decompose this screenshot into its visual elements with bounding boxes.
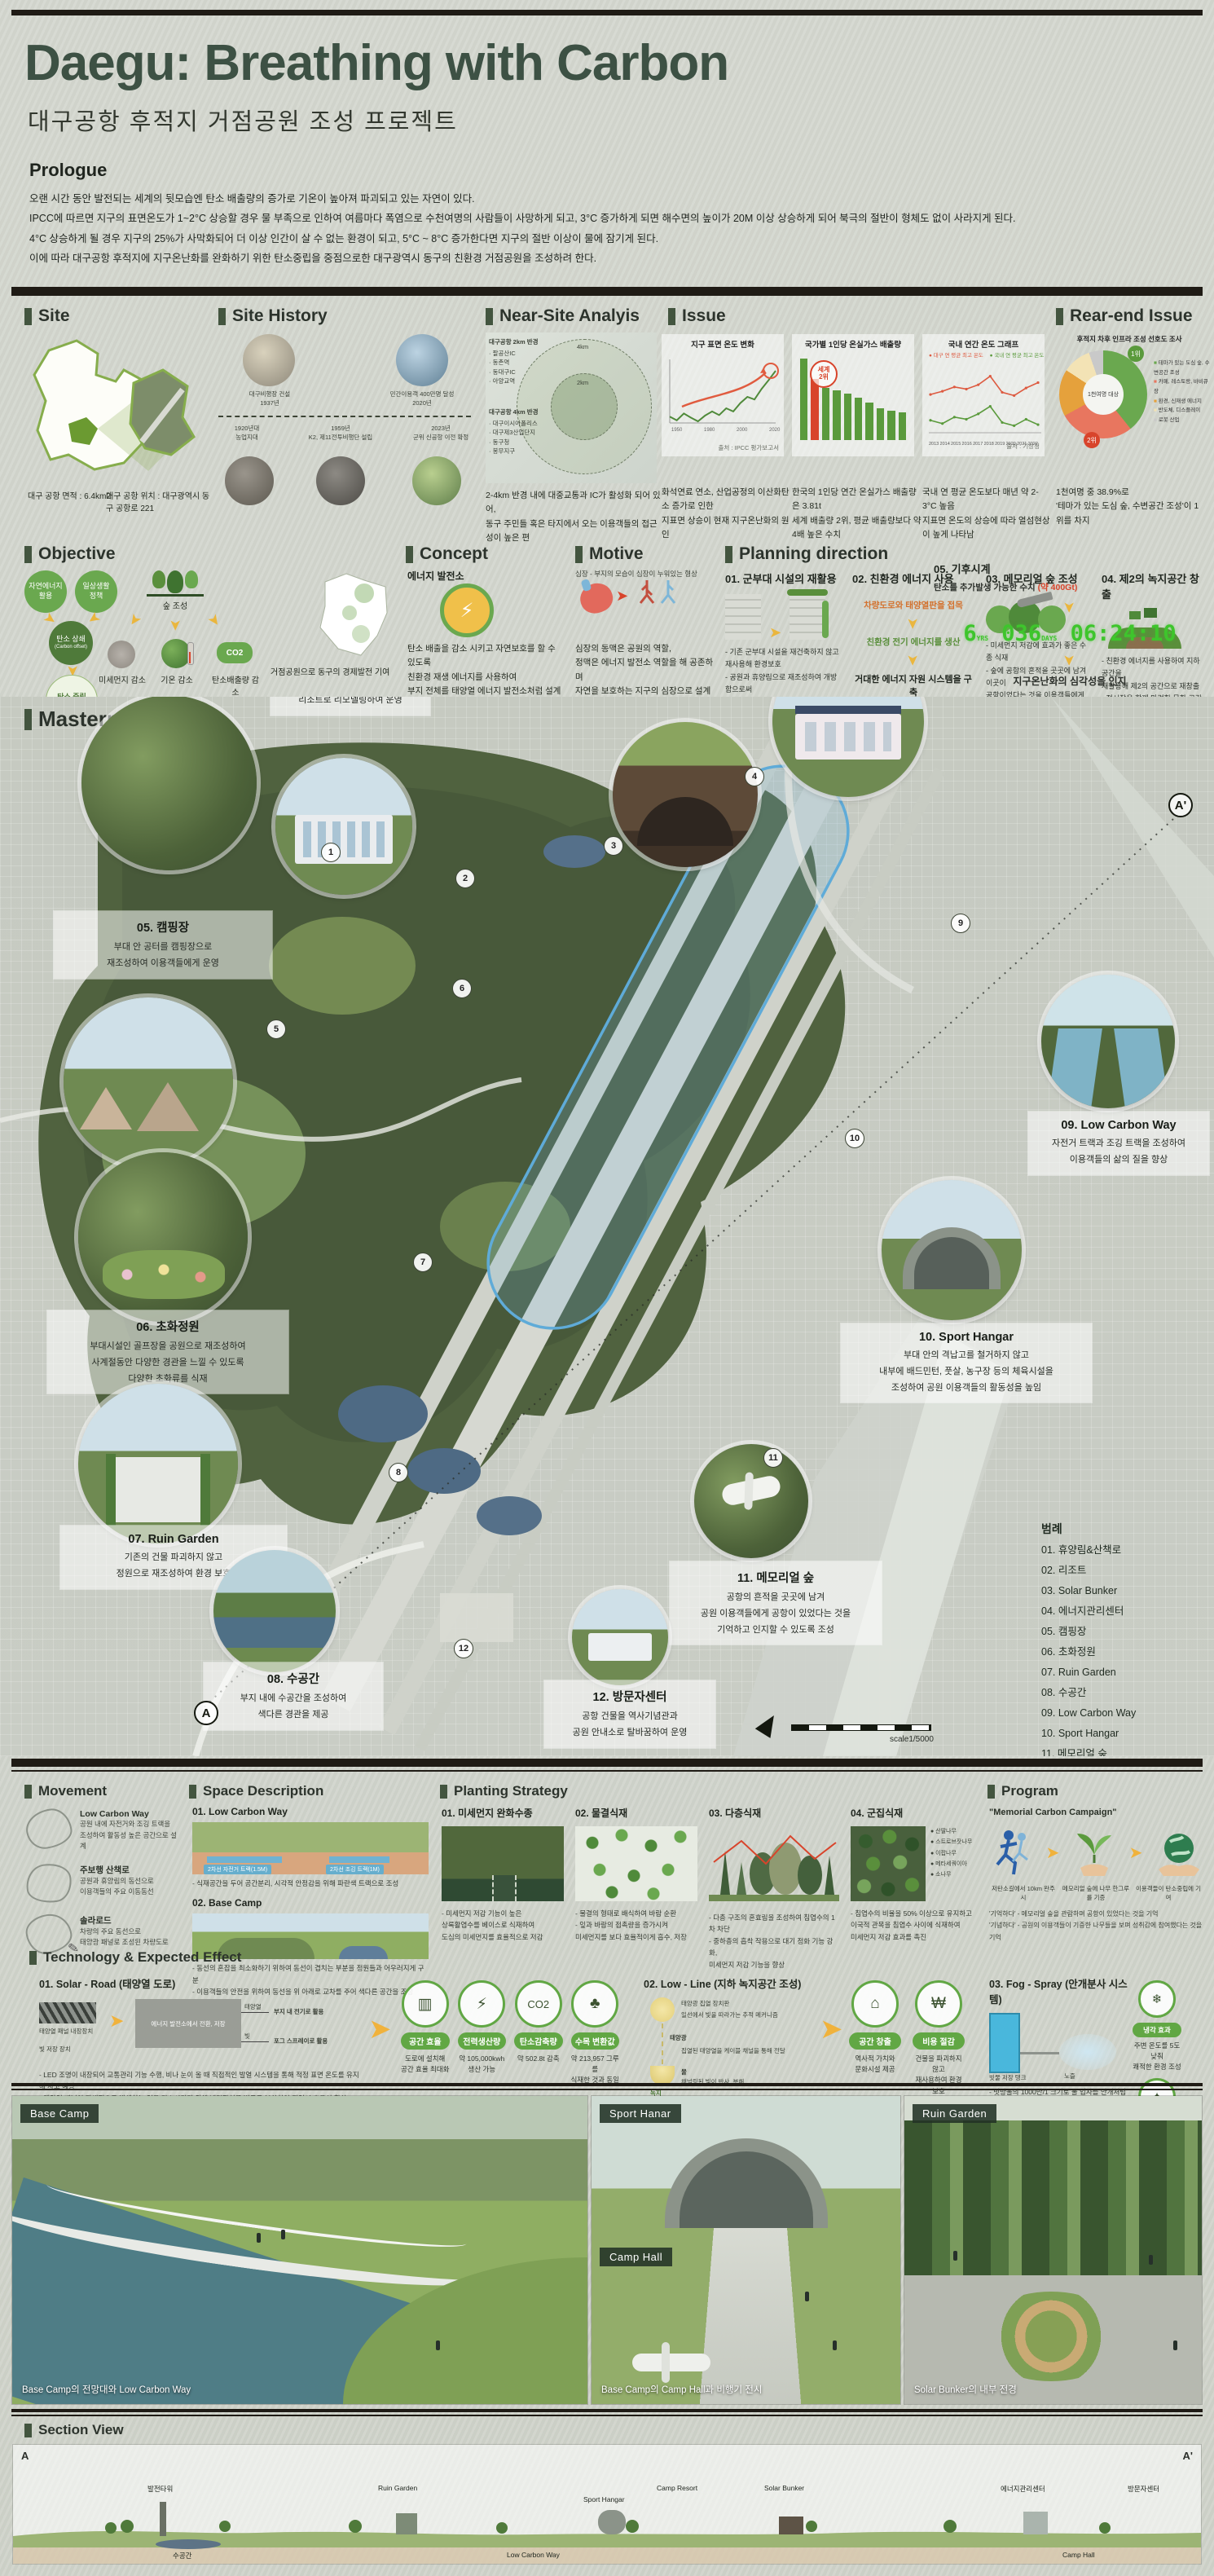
hangar-arch: [665, 2138, 828, 2228]
memorial-airplane: [720, 1474, 782, 1507]
legend-item: 05. 캠핑장: [1041, 1622, 1136, 1642]
section-view-heading: Section View: [24, 2422, 124, 2438]
program-step2: 메모리얼 숲에 나무 한그루를 기증: [1062, 1884, 1130, 1902]
earth-thermometer-icon: [161, 639, 191, 668]
history-photo-2020: [396, 334, 448, 386]
timeline-axis: [218, 416, 471, 417]
badge-carbon: CO2탄소감축량약 502.8t 감축: [514, 1980, 563, 2086]
issue-heading: Issue: [668, 306, 726, 326]
callout-12: 12. 방문자센터 공항 건물을 역사기념관과 공원 안내소로 탈바꿈하여 운영: [544, 1680, 715, 1748]
donut-legend-item: ■ 카페, 레스토랑, 바비큐장: [1154, 377, 1211, 396]
blue-track-left: [1047, 1028, 1102, 1108]
domestic-temp-line-chart: [922, 359, 1045, 438]
bar: [800, 359, 807, 440]
program-step1: 저탄소길에서 10km 완주 시: [989, 1884, 1058, 1902]
movement-route-1: Low Carbon Way공원 내에 자전거와 조깅 트랙을 조성하여 활동성…: [26, 1809, 179, 1852]
svg-text:2000: 2000: [737, 428, 748, 433]
tech2-l3: 집열된 태양열을 케이블 채널을 통해 전달: [681, 2046, 812, 2055]
movement-heading: Movement: [24, 1783, 107, 1799]
history-1959-label: K2, 제11전투비행단 설립: [309, 434, 372, 441]
visitor-center-building: [588, 1633, 652, 1661]
site-heading: Site: [24, 306, 70, 326]
history-1937-year: 1937년: [260, 399, 279, 407]
site-area-label: 대구 공항 면적 : 6.4km2: [28, 489, 111, 501]
section-label-water: 수공간: [173, 2551, 191, 2561]
legend-item: 06. 초화정원: [1041, 1642, 1136, 1662]
map-marker-8: 8: [389, 1463, 408, 1482]
map-marker-12: 12: [454, 1639, 473, 1658]
section-label-energy-center: 에너지관리센터: [1001, 2484, 1045, 2494]
map-marker-7: 7: [413, 1253, 433, 1272]
chart-domestic-temp: 국내 연간 온도 그래프 ● 대구 연 평균 최고 온도 ● 국내 연 평균 최…: [922, 334, 1045, 456]
history-2020-year: 2020년: [412, 399, 432, 407]
callout-02: 02. 리조트 생활관으로 사용하던 공간을 리조트로 리모델링하여 운영: [271, 697, 430, 716]
legend-item: 09. Low Carbon Way: [1041, 1703, 1136, 1724]
climate-clock: 6YRS 036DAYS 06:24:10: [934, 621, 1206, 646]
ruin-court: [116, 1457, 200, 1522]
history-photo-1920s: [225, 456, 274, 505]
donut-legend-item: ■ 반도체, 디스플레이: [1154, 406, 1211, 416]
arrow-right-icon: ➤: [820, 2013, 843, 2045]
tech2-w1: 태양광: [670, 2033, 687, 2042]
callout-06: 06. 초화정원 부대시설인 골프장을 공원으로 재조성하여 사계절동안 다양한…: [47, 1310, 288, 1394]
technology-heading: Technology & Expected Effect: [29, 1949, 241, 1966]
planting-item-3: 03. 다층식재 - 다층 구조의 혼효림을 조성하여 침엽수의 1차 차단 -…: [709, 1806, 839, 1971]
tech1-diagram: 태양열 패널 내장장치 빛 저장 장치 ➤ 에너지 발전소에서 전환, 저장 태…: [39, 1997, 365, 2061]
vessels-icon: [634, 577, 683, 619]
near-group1-items: · 팔공산IC · 동촌역 · 동대구IC · 아양교역: [489, 349, 516, 385]
near-group1-title: 대구공항 2km 반경: [489, 337, 539, 346]
section-label-low-carbon-way: Low Carbon Way: [507, 2551, 560, 2559]
motive-body: 심장의 동맥은 공원의 역할, 정맥은 에너지 발전소 역할을 해 공존하며 자…: [575, 642, 714, 698]
history-1937-label: 대구비행장 건설: [249, 390, 290, 398]
building-reuse-icon: ➤: [725, 594, 839, 640]
bar: [833, 390, 840, 440]
objective-node-offset: 탄소 상쇄(Carbon offset): [49, 621, 93, 665]
thermometer-icon: ❄: [1138, 1980, 1176, 2018]
bar: [887, 411, 895, 440]
prologue-body: 오랜 시간 동안 발전되는 세계의 뒷모습엔 탄소 배출량의 증가로 기온이 높…: [29, 189, 1186, 269]
planting-item-2: 02. 물결식재 - 물결의 형태로 배식하여 바람 순환 - 잎과 바람의 접…: [575, 1806, 697, 1943]
program-sub: "Memorial Carbon Campaign": [989, 1808, 1117, 1817]
tech1-out1b: 부지 내 전기로 활용: [274, 2007, 323, 2016]
tech1-title: 01. Solar - Road (태양열 도로): [39, 1975, 365, 1991]
badge-trees: ♣수목 변환값약 213,957 그루를 식재한 것과 동일: [571, 1980, 620, 2086]
world-rank-badge: 세계 2위: [810, 360, 838, 388]
space-item-1: 01. Low Carbon Way 2차선 자전거 트랙(1.5M) 2차선 …: [192, 1806, 429, 1998]
heading-bullet: [24, 308, 32, 325]
section-label-sport-hangar: Sport Hangar: [583, 2495, 625, 2503]
donut-legend: ■ 테마가 있는 도심 숲, 수변공간 조성■ 카페, 레스토랑, 바비큐장■ …: [1154, 359, 1211, 425]
planning5-top: 탄소를 추가발생 가능한 수치 (약 400Gt): [934, 581, 1206, 593]
history-1920-label: 농업지대: [235, 434, 258, 441]
legend-item: 03. Solar Bunker: [1041, 1581, 1136, 1601]
history-photo-1937: [243, 334, 295, 386]
arrow-icon: ➤: [616, 588, 628, 603]
hangar-arch: [903, 1227, 1001, 1289]
callout-10: 10. Sport Hangar 부대 안의 격납고를 철거하지 않고 내부에 …: [841, 1323, 1092, 1402]
co2-cloud-icon: CO2: [217, 642, 253, 663]
movement-route-3: ✎ 솔라로드차량의 주요 동선으로 태양광 패널로 조성된 차량도로: [26, 1914, 179, 1953]
tech2-l2: 일선에서 빛을 따라가는 추적 메커니즘: [681, 2010, 812, 2019]
chart2-title: 국가별 1인당 온실가스 배출량: [792, 334, 914, 350]
tree-icon: ♣: [571, 1980, 618, 2028]
donut-legend-item: ■ 환경, 신재생 에너지: [1154, 397, 1211, 407]
divider-rule-3: [11, 2083, 1203, 2086]
render3-tag: Ruin Garden: [913, 2104, 996, 2123]
svg-text:1980: 1980: [704, 428, 715, 433]
program-quote-2: '기념하다' - 공원의 이용객들이 기증한 나무들을 보며 성취감에 참여했다…: [989, 1920, 1206, 1944]
track-tag-2: 2차선 조깅 트랙(1M): [326, 1865, 384, 1874]
bunker-arch: [637, 797, 733, 846]
tech3-diagram: 빗물 저장 탱크 노즐: [989, 2013, 1128, 2086]
legend-item: 02. 리조트: [1041, 1561, 1136, 1581]
planting-item-4: 04. 군집식재 ● 산딸나무 ● 스트로브잣나무 ● 이팝나무 ● 메타세쿼이…: [851, 1806, 973, 1943]
legend-item: 07. Ruin Garden: [1041, 1662, 1136, 1683]
mist-icon: [1059, 2034, 1116, 2070]
program-quote-1: '기억하다' - 메모리얼 숲을 관람하며 공항이 있었다는 것을 기억: [989, 1909, 1206, 1920]
legend-item: 11. 메모리얼 숲: [1041, 1744, 1136, 1756]
daegu-district-map: [314, 570, 391, 660]
divider-rule-4: [11, 2409, 1203, 2412]
arrow-right-icon: ➤: [1129, 1843, 1143, 1863]
road-icon: ▥: [402, 1980, 449, 2028]
tech3-tank-label: 빗물 저장 탱크: [989, 2073, 1038, 2082]
divider-rule-1: [11, 287, 1203, 296]
render3-caption: Solar Bunker의 내부 전경: [914, 2383, 1017, 2396]
arrow-right-icon: ➤: [368, 2013, 392, 2045]
tunnel-icon: ⌂: [851, 1980, 899, 2028]
blue-track-right: [1114, 1028, 1169, 1108]
chart-ghg-bars: 국가별 1인당 온실가스 배출량 세계 2위: [792, 334, 914, 456]
near-group2-title: 대구공항 4km 반경: [489, 407, 539, 416]
chart3-title: 국내 연간 온도 그래프: [922, 334, 1045, 350]
green-wall-garden: [904, 2120, 1202, 2275]
planting2-image: [575, 1826, 697, 1901]
section-label-camp-hall: Camp Hall: [1062, 2551, 1095, 2559]
near-group2-items: · 대구이시아폴리스 · 대구제3산업단지 · 동구청 · 봉무지구: [489, 419, 538, 456]
badge-cost: ₩비용 절감건물을 파괴하지 않고 재사용하여 환경보호: [913, 1980, 965, 2097]
tech3-nozzle-label: 노즐: [1064, 2072, 1075, 2081]
tech3-title: 03. Fog - Spray (안개분사 시스템): [989, 1975, 1128, 2006]
tech1-out1a: 태양열: [244, 2002, 262, 2011]
section-profile: [13, 2445, 1201, 2564]
space-desc-heading: Space Description: [189, 1783, 323, 1799]
near-site-heading: Near-Site Analyis: [486, 306, 640, 326]
bar: [855, 398, 862, 440]
chart3-legend-daegu: ● 대구 연 평균 최고 온도: [929, 353, 983, 359]
earth-hands-icon: [1155, 1827, 1203, 1878]
bar: [822, 388, 829, 440]
tech2-diagram: 태양광 집열 장치판 일선에서 빛을 따라가는 추적 메커니즘 태양광 집열된 …: [644, 1997, 823, 2095]
section-marker-a: A: [194, 1701, 218, 1725]
callout-09: 09. Low Carbon Way 자전거 트랙과 조깅 트랙을 조성하여 이…: [1028, 1112, 1209, 1175]
section-label-camp-resort: Camp Resort: [657, 2484, 697, 2492]
planning-heading: Planning direction: [725, 544, 888, 564]
legend-item: 04. 에너지관리센터: [1041, 1601, 1136, 1622]
planning5-bottom: 지구온난화의 심각성을 인지: [934, 674, 1206, 688]
dust-icon: [108, 641, 135, 668]
objective-map-caption: 거점공원으로 동구의 경제발전 기여: [271, 665, 393, 677]
badge-power: ⚡전력생산량약 105,000kwh 생산 가능: [458, 1980, 507, 2086]
flower-bed: [103, 1250, 225, 1299]
runner-icon: [989, 1827, 1033, 1878]
map-marker-11: 11: [763, 1448, 783, 1468]
render-ruin-garden: Ruin Garden Solar Bunker의 내부 전경: [904, 2096, 1202, 2404]
render2-tag1: Sport Hanar: [600, 2104, 681, 2123]
poster-title: Daegu: Breathing with Carbon: [24, 34, 728, 92]
program-step3: 이용객들이 탄소중립에 기여: [1134, 1884, 1203, 1902]
tech1-badges: ▥공간 효율도로에 설치해 공간 효율 최대화 ⚡전력생산량약 105,000k…: [401, 1980, 619, 2086]
map-legend: 범례 01. 휴양림&산책로 02. 리조트 03. Solar Bunker …: [1041, 1517, 1136, 1756]
tech2-title: 02. Low - Line (지하 녹지공간 조성): [644, 1975, 823, 1991]
concept-sub: 에너지 발전소: [407, 569, 464, 583]
masterplan-map: Masterplan 01. 휴양림&산책로 기존에 있는 산지에 산책로를 만…: [0, 697, 1214, 1756]
map-marker-10: 10: [845, 1129, 864, 1148]
benefit1-label: 미세먼지 감소: [96, 673, 148, 685]
arrow-down-icon: ➤: [1062, 654, 1077, 666]
airplane: [632, 2354, 710, 2371]
scale-label: scale1/5000: [890, 1735, 934, 1744]
tech2-badges: ⌂공간 창출역사적 가치와 문화시설 제공 ₩비용 절감건물을 파괴하지 않고 …: [849, 1980, 971, 2097]
program-steps-icons: ➤ ➤: [989, 1827, 1203, 1878]
badge-space: ▥공간 효율도로에 설치해 공간 효율 최대화: [401, 1980, 450, 2086]
sun-energy-icon: ⚡: [440, 583, 494, 637]
donut-legend-item: ■ 테마가 있는 도심 숲, 수변공간 조성: [1154, 359, 1211, 377]
callout-11: 11. 메모리얼 숲 공항의 흔적을 곳곳에 남겨 공원 이용객들에게 공항이 …: [670, 1561, 882, 1645]
bar: [811, 379, 818, 440]
legend-title: 범례: [1041, 1517, 1136, 1540]
solar-roof: [795, 706, 901, 714]
poster-root: { "poster": { "header": { "title": "Daeg…: [0, 0, 1214, 2576]
donut-legend-item: ■ 로봇 산업: [1154, 416, 1211, 425]
objective-node-natural-energy: 자연에너지 활용: [24, 570, 67, 613]
legend-item: 10. Sport Hangar: [1041, 1724, 1136, 1744]
arrow-down-icon: ➤: [1062, 601, 1077, 613]
map-marker-5: 5: [266, 1019, 286, 1039]
tent-icon: [137, 1082, 199, 1131]
history-photo-2023: [412, 456, 461, 505]
planting-heading: Planting Strategy: [440, 1783, 568, 1799]
history-1920-year: 1920년대: [235, 425, 260, 432]
chart2-caption: 한국의 1인당 연간 온실가스 배출량은 3.81t 세계 배출량 2위, 평균…: [792, 486, 922, 542]
program-heading: Program: [987, 1783, 1058, 1799]
coin-icon: ₩: [915, 1980, 962, 2028]
rank1-badge: 1위: [1128, 346, 1144, 362]
callout-01-photo: [81, 697, 257, 870]
callout-11-photo: [694, 1444, 808, 1558]
heliostat-icon: [650, 1997, 675, 2022]
map-marker-9: 9: [951, 914, 970, 933]
plug-icon: ⚡: [458, 1980, 505, 2028]
movement-routes: Low Carbon Way공원 내에 자전거와 조깅 트랙을 조성하여 활동성…: [26, 1809, 179, 1953]
planting3-image: [709, 1826, 839, 1901]
callout-09-photo: [1041, 975, 1175, 1108]
chart-global-temp: 지구 표면 온도 변화 1950198020002020 출처 : IPCC 평…: [662, 334, 784, 456]
resort-building: [295, 815, 393, 864]
tech-group-2: 02. Low - Line (지하 녹지공간 조성) 태양광 집열 장치판 일…: [644, 1975, 823, 2095]
arrow-down-icon: ➤: [906, 654, 921, 666]
arrow-icon: ➤: [205, 611, 224, 630]
co2-icon: CO2: [515, 1980, 562, 2028]
preference-donut-chart: 1천여명 대상 1위 2위: [1059, 350, 1147, 438]
legend-item: 08. 수공간: [1041, 1683, 1136, 1703]
low-carbon-way-section: 2차선 자전거 트랙(1.5M) 2차선 조깅 트랙(1M): [192, 1822, 429, 1874]
tech1-out2b: 포그 스프레이로 활용: [274, 2037, 328, 2045]
chart1-source: 출처 : IPCC 평가보고서: [662, 443, 784, 452]
scale-bar: [792, 1725, 930, 1730]
section-label-solar-bunker: Solar Bunker: [764, 2484, 804, 2492]
tent-icon: [80, 1087, 132, 1129]
site-history-timeline: 대구비행장 건설1937년 민간이용객 400만명 달성2020년 1920년대…: [218, 332, 471, 520]
bar: [865, 403, 873, 440]
tech2-w2: 물: [681, 2067, 687, 2076]
map-marker-1: 1: [321, 843, 341, 862]
history-2023-label: 군위 신공항 이전 확정: [413, 434, 468, 441]
section-label-visitor-center: 방문자센터: [1128, 2484, 1159, 2494]
tech2-l1: 태양광 집열 장치판: [681, 1999, 803, 2008]
tech1-out2a: 빛: [244, 2032, 250, 2041]
objective-node-daily-policy: 일상생활 정책: [75, 570, 117, 613]
render1-tag: Base Camp: [20, 2104, 99, 2123]
site-location-label: 대구 공항 위치 : 대구광역시 동구 공항로 221: [106, 489, 212, 513]
motive-heading: Motive: [575, 544, 644, 564]
svg-text:2020: 2020: [769, 428, 781, 433]
planting1-image: [442, 1826, 564, 1901]
planning5-title: 05. 기후시계: [934, 561, 1206, 576]
section-marker-a-prime: A': [1168, 793, 1193, 817]
solar-panel-icon: [39, 2002, 96, 2023]
callout-06-photo: [78, 1152, 248, 1322]
route-sketch-icon: [24, 1806, 74, 1851]
arrow-icon: ➤: [169, 619, 183, 631]
history-photo-1959: [316, 456, 365, 505]
energy-center-building: [795, 714, 901, 760]
chart3-legend-national: ● 국내 연 평균 최고 온도: [990, 353, 1045, 359]
circular-flower-bed: [978, 2292, 1124, 2381]
badge-cooling: ❄냉각 효과주변 온도를 5도 낮춰 쾌적한 환경 조성: [1133, 1980, 1181, 2073]
objective-diagram: 자연에너지 활용 일상생활 정책 ➤ ➤ 탄소 상쇄(Carbon offset…: [24, 570, 310, 693]
forest-icon: 숲 조성: [147, 570, 204, 611]
callout-07-photo: [78, 1384, 238, 1543]
track-tag-1: 2차선 자전거 트랙(1.5M): [204, 1865, 271, 1874]
tech1-panel-label: 태양열 패널 내장장치: [39, 2027, 104, 2036]
callout-12-photo: [572, 1589, 668, 1685]
badge-space-create: ⌂공간 창출역사적 가치와 문화시설 제공: [849, 1980, 901, 2097]
movement-route-2: 주보행 산책로공원과 휴양림의 동선으로 이용객들의 주요 이동동선: [26, 1864, 179, 1903]
forest-label: 숲 조성: [147, 599, 204, 611]
tech1-store-label: 빛 저장 장치: [39, 2045, 104, 2054]
section-label-tower: 발전타워: [147, 2484, 173, 2494]
planning-item-1: 01. 군부대 시설의 재활용 ➤ - 기존 군부대 시설을 재건축하지 않고 …: [725, 570, 839, 708]
section-view-box: A A' 발전타워 Ruin Garden Sport Hangar Camp …: [13, 2445, 1201, 2564]
chart3-year-ticks: 2013201420152016201720182019202020212022: [929, 442, 1038, 447]
planning1-title: 01. 군부대 시설의 재활용: [725, 570, 839, 586]
map-marker-4: 4: [745, 767, 764, 786]
objective-heading: Objective: [24, 544, 116, 564]
ring-4km-label: 4km: [577, 342, 588, 351]
arrow-right-icon: ➤: [1046, 1843, 1060, 1863]
divider-rule-2b: [11, 1770, 1203, 1772]
render2-tag2: Camp Hall: [600, 2248, 672, 2266]
chart1-caption: 화석연료 연소, 산업공정의 이산화탄소 증가로 인한 지표면 상승이 현재 지…: [662, 486, 792, 542]
callout-10-photo: [882, 1180, 1022, 1320]
chart1-title: 지구 표면 온도 변화: [662, 334, 784, 350]
concept-body: 탄소 배출을 감소 시키고 자연보호를 할 수 있도록 친환경 재생 에너지를 …: [407, 642, 562, 698]
top-rule: [11, 10, 1203, 15]
render1-caption: Base Camp의 전망대와 Low Carbon Way: [22, 2383, 191, 2396]
near-site-map: 4km 2km 대구공항 2km 반경 · 팔공산IC · 동촌역 · 동대구I…: [486, 332, 657, 483]
arrow-right-icon: ➤: [769, 625, 781, 640]
tech1-plant-box: 에너지 발전소에서 전환, 저장: [135, 1999, 241, 2048]
history-2023-year: 2023년: [431, 425, 451, 432]
callout-08: 08. 수공간 부지 내에 수공간을 조성하여 색다른 경관을 제공: [204, 1662, 383, 1730]
site-map-graphic: [26, 332, 201, 483]
bar: [844, 394, 851, 440]
planting-item-1: 01. 미세먼지 완화수종 - 미세먼지 저감 기능이 높은 상록활엽수를 베이…: [442, 1806, 564, 1943]
benefit3-label: 탄소배출량 감소: [209, 673, 262, 698]
divider-rule-2: [11, 1759, 1203, 1767]
callout-03-photo: [613, 722, 758, 867]
near-site-caption: 2-4km 반경 내에 대중교통과 IC가 활성화 되어 있어, 동구 주민들 …: [486, 489, 665, 545]
map-marker-6: 6: [452, 979, 472, 998]
route-sketch-icon: [24, 1860, 74, 1905]
chart3-caption: 국내 연 평균 온도보다 매년 약 2-3°C 높음 지표면 온도의 상승에 따…: [922, 486, 1053, 542]
divider-rule-4b: [11, 2415, 1203, 2416]
legend-item: 01. 휴양림&산책로: [1041, 1540, 1136, 1561]
callout-05: 05. 캠핑장 부대 안 공터를 캠핑장으로 재조성하여 이용객들에게 운영: [54, 911, 272, 979]
callout-08-photo: [213, 1550, 336, 1672]
bar: [899, 412, 906, 440]
benefit2-label: 기온 감소: [156, 673, 197, 685]
planning-item-5: 05. 기후시계탄소를 추가발생 가능한 수치 (약 400Gt)➤6YRS 0…: [934, 561, 1206, 688]
rank2-badge: 2위: [1084, 432, 1100, 448]
species-legend: ● 산딸나무 ● 스트로브잣나무 ● 이팝나무 ● 메타세쿼이아 ● 소나무: [930, 1826, 972, 1901]
svg-text:1950: 1950: [671, 428, 683, 433]
poster-subtitle: 대구공항 후적지 거점공원 조성 프로젝트: [28, 103, 458, 137]
concept-heading: Concept: [406, 544, 488, 564]
divider-rule-3b: [11, 2089, 1203, 2090]
render-base-camp: Base Camp Base Camp의 전망대와 Low Carbon Way: [12, 2096, 587, 2404]
donut-caption: 1천여명 중 38.9%로 '테마가 있는 도심 숲, 수변공간 조성'이 1위…: [1056, 486, 1203, 528]
path: [695, 2228, 806, 2404]
callout-02-photo: [275, 758, 412, 895]
map-marker-2: 2: [455, 869, 475, 888]
global-temp-line-chart: 1950198020002020: [662, 350, 784, 439]
donut-center-label: 1천여명 대상: [1083, 374, 1124, 415]
arrow-right-icon: ➤: [109, 2010, 124, 2032]
history-1959-year: 1959년: [331, 425, 350, 432]
bar: [877, 408, 884, 440]
ring-2km-label: 2km: [577, 378, 588, 387]
donut-title: 후적지 차후 인프라 조성 선호도 조사: [1056, 334, 1203, 344]
arrow-icon: ➤: [125, 611, 144, 630]
site-history-heading: Site History: [218, 306, 328, 326]
water-tank-icon: [989, 2013, 1020, 2073]
prologue-heading: Prologue: [29, 160, 107, 181]
callout-05-photo: [64, 997, 233, 1167]
seedling-hand-icon: [1072, 1827, 1116, 1878]
render2-caption: Base Camp의 Camp Hall과 비행기 전시: [601, 2383, 762, 2396]
heart-icon: [576, 579, 616, 618]
arrow-down-icon: ➤: [906, 617, 921, 629]
pipe: [1020, 2052, 1059, 2054]
history-2020-label: 민간이용객 400만명 달성: [390, 390, 455, 398]
map-marker-3: 3: [604, 836, 623, 856]
section-label-ruin-garden: Ruin Garden: [378, 2484, 417, 2492]
planting4-image: [851, 1826, 926, 1901]
render-sport-hangar: Sport Hanar Camp Hall Base Camp의 Camp Ha…: [592, 2096, 900, 2404]
